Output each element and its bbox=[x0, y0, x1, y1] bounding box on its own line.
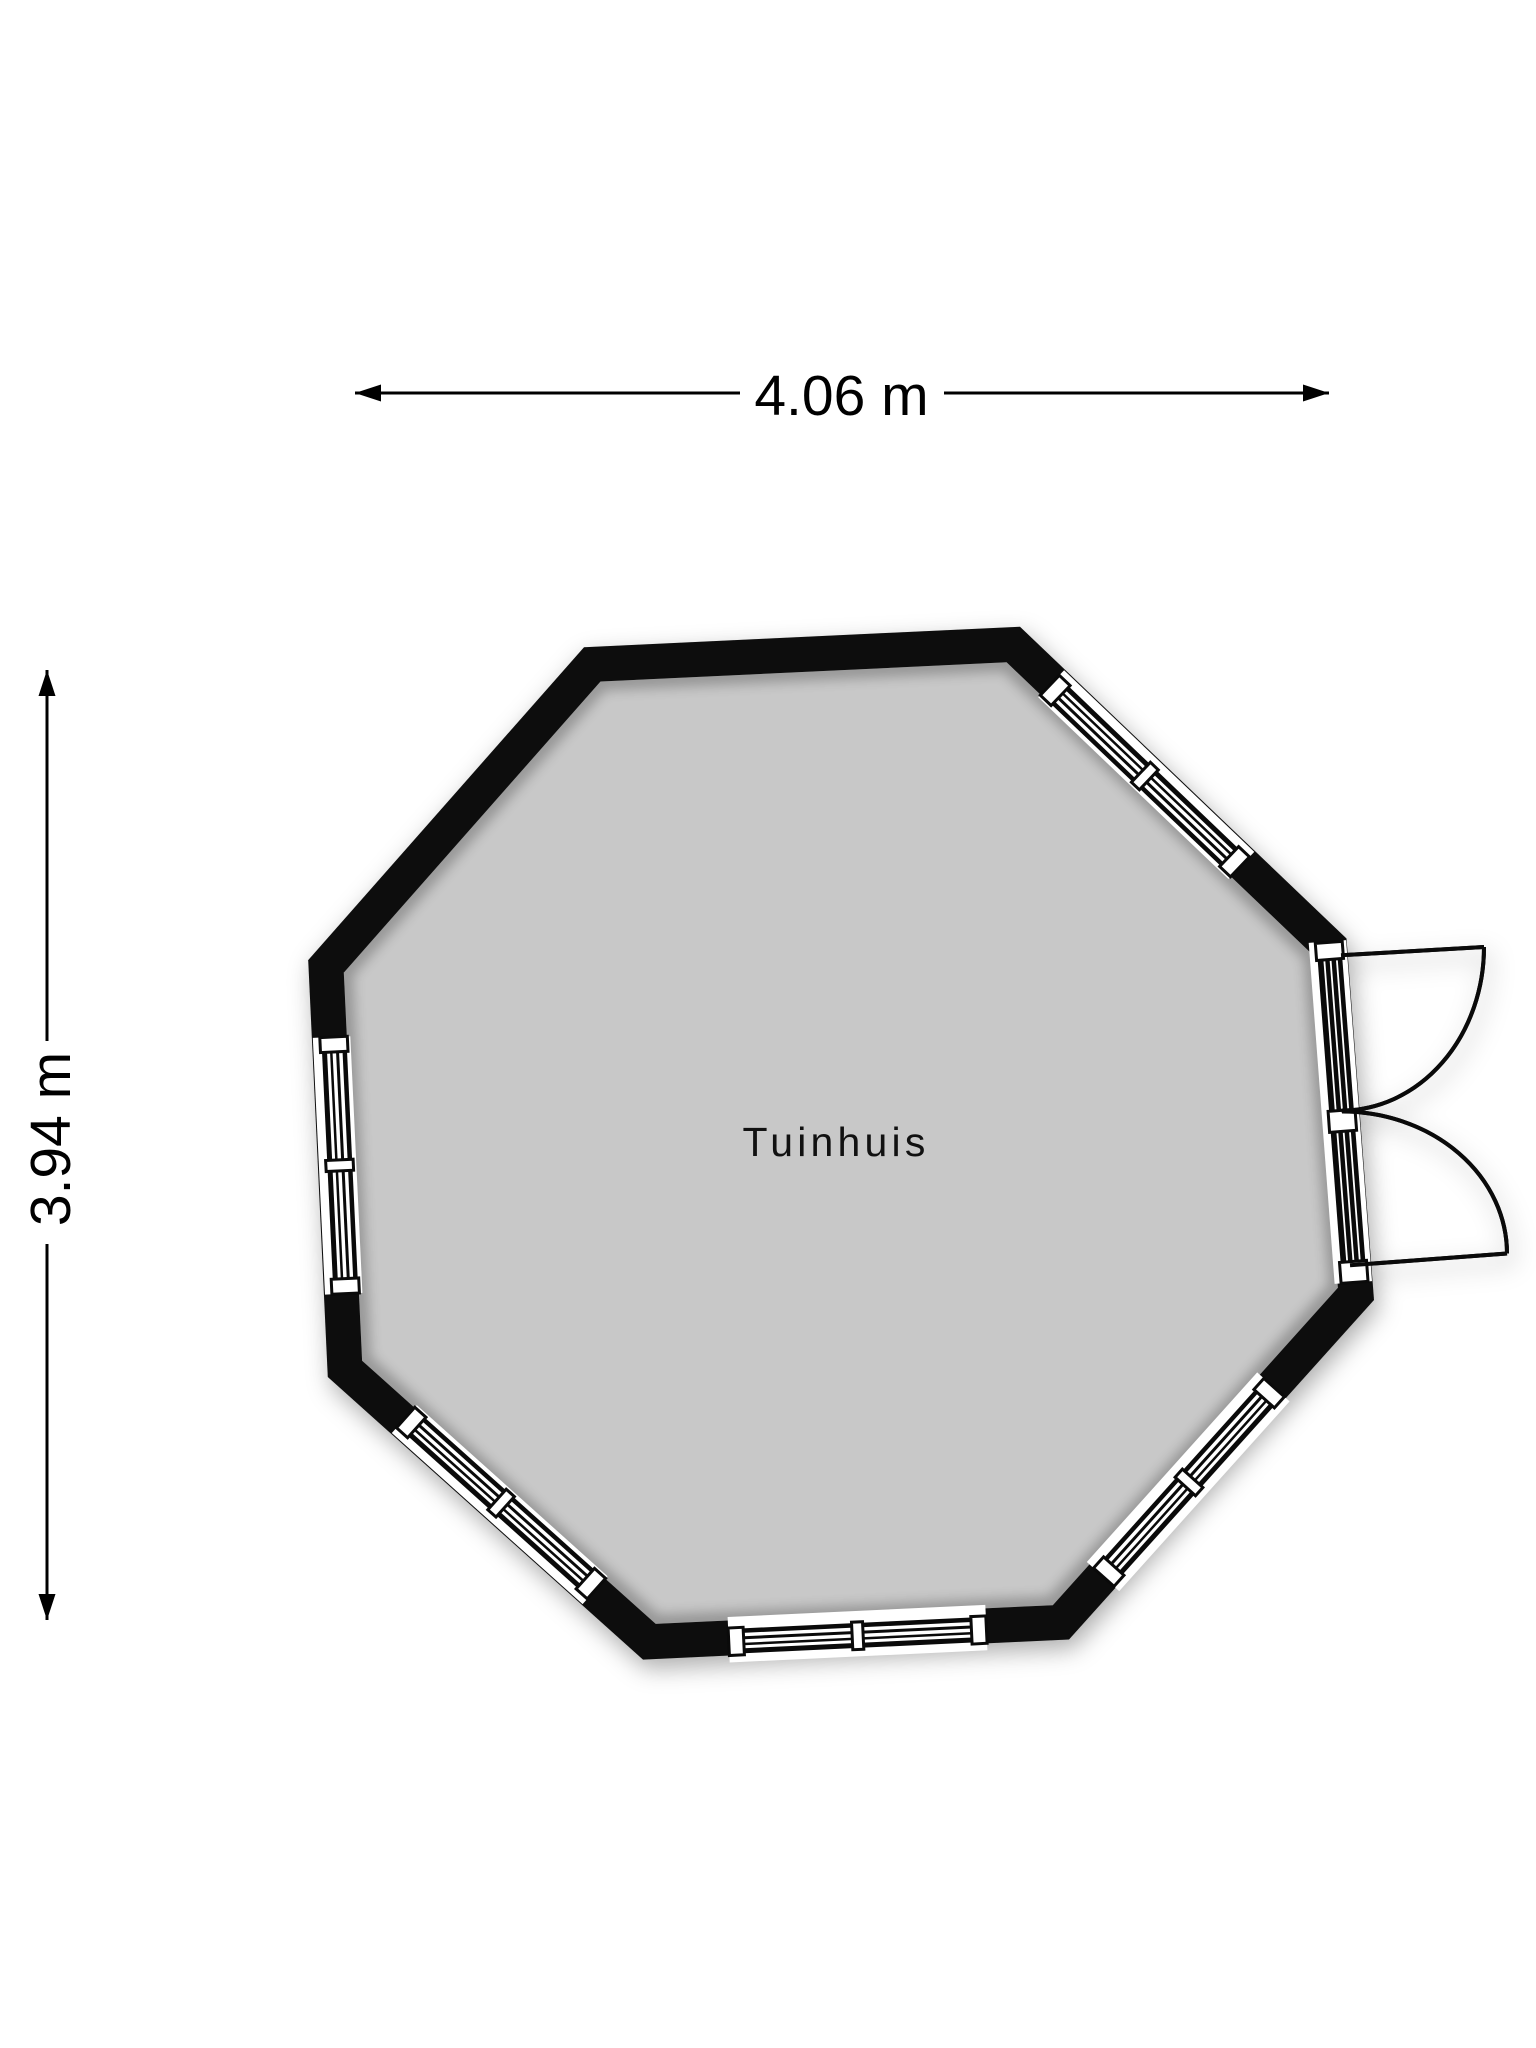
svg-text:Tuinhuis: Tuinhuis bbox=[742, 1119, 929, 1165]
svg-text:4.06 m: 4.06 m bbox=[754, 364, 928, 428]
svg-text:3.94 m: 3.94 m bbox=[19, 1052, 83, 1226]
